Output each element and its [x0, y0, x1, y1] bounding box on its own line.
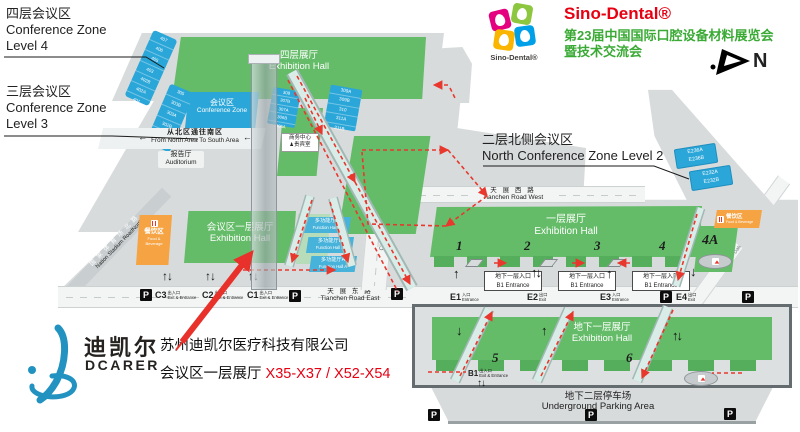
section-3: 3: [594, 238, 601, 254]
facility-marker-icon: [698, 375, 705, 382]
level4-hall-label-cn: 四层展厅: [172, 50, 426, 61]
parking-icon: P: [660, 291, 672, 303]
south-hall-label-cn: 会议区一层展厅: [184, 222, 296, 233]
tianchen-road-west-label: 天 展 西 路 Tianchen Road West: [468, 187, 558, 201]
sino-logo-caption: Sino-Dental®: [480, 53, 548, 62]
dcarer-name-en: DCARER: [85, 357, 160, 373]
south-hall-label-en: Exhibition Hall: [184, 233, 296, 244]
gate-c3: C3 出入口 Exit & Entrance: [155, 291, 196, 300]
arrow-updown-icon: ↑↓: [531, 265, 540, 280]
level4-exhibition-hall: 四层展厅 Exhibition Hall: [172, 37, 426, 99]
auditorium-label-cn: 报告厅: [158, 151, 204, 159]
arrow-up-icon: ↑: [541, 323, 548, 338]
venue-map: 国家体育场北路 Nation Stadium RoadNorth 天 展 东 路…: [0, 0, 800, 432]
section-6: 6: [626, 350, 633, 366]
parking-icon: P: [140, 289, 152, 301]
arrow-up-icon: ↑: [606, 266, 613, 281]
vip-room-label: 贵宾室: [294, 142, 311, 148]
level3-title: 三层会议区 Conference Zone Level 3: [6, 84, 106, 132]
food-icon: [151, 220, 158, 227]
level4-hall-label-en: Exhibition Hall: [172, 61, 426, 72]
dcarer-company: 苏州迪凯尔医疗科技有限公司: [160, 334, 349, 355]
level3-conference-zone: 会议区 Conference Zone: [185, 92, 259, 128]
parking-bottom-edge: [448, 421, 756, 424]
parking-icon: P: [391, 288, 403, 300]
level4-title: 四层会议区 Conference Zone Level 4: [6, 6, 106, 54]
gate-b1: B1 出入口 Exit & Entrance: [468, 369, 508, 378]
dcarer-logo: [22, 324, 80, 410]
dcarer-booth: 会议区一层展厅 X35-X37 / X52-X54: [160, 362, 390, 383]
food-beverage-north: 餐饮区 Food & Beverage: [714, 210, 762, 228]
b1-hall-label-en: Exhibition Hall: [432, 333, 772, 344]
gate-c1: C1 出入口 Exit & Entrance: [247, 291, 288, 300]
parking-icon: P: [724, 408, 736, 420]
b1-entrance-box-3: 地下一层入口 B1 Entrance: [632, 271, 690, 291]
function-hall-a: 多功能厅A Function Hall A: [309, 256, 357, 272]
arrow-left-icon: ←: [138, 132, 147, 142]
section-4a: 4A: [702, 233, 718, 249]
function-hall-b: 多功能厅B Function Hall B: [306, 237, 354, 253]
corridor-label-en: From North Area To South Area: [151, 137, 239, 144]
sino-title: Sino-Dental®: [564, 4, 671, 24]
elevator-shaft-cap: [248, 54, 280, 64]
facility-marker: [684, 371, 718, 386]
gate-e2: E2 出口 Exit: [527, 293, 547, 302]
b1-hall-label-cn: 地下一层展厅: [432, 322, 772, 333]
zone3-label-cn: 会议区: [185, 98, 259, 107]
arrow-updown-icon: ↑↓: [477, 378, 485, 389]
arrow-updown-icon: ↑↓: [205, 269, 215, 283]
section-5: 5: [492, 350, 499, 366]
food-icon: [717, 216, 724, 223]
section-1: 1: [456, 238, 463, 254]
logo-tile-yellow: [493, 29, 516, 52]
south-exhibition-hall: 会议区一层展厅 Exhibition Hall: [184, 211, 296, 263]
parking-icon: P: [585, 409, 597, 421]
gate-c2: C2 出入口 Exit & Entrance: [202, 291, 243, 300]
food-south-cn: 餐饮区: [136, 227, 172, 236]
auditorium-label-en: Auditorium: [158, 159, 204, 166]
function-hall-c: 多功能厅C Function Hall C: [303, 217, 351, 233]
corridor-label: ← 从北区通往南区 From North Area To South Area …: [120, 129, 270, 144]
arrow-updown-icon: ↑↓: [162, 269, 172, 283]
arrow-down-icon: ↓: [690, 264, 697, 279]
booth-label: 会议区一层展厅: [160, 366, 266, 382]
gate-e3: E3 入口 Entrance: [600, 293, 629, 302]
north-hall-label-cn: 一层展厅: [430, 214, 702, 226]
gate-e1: E1 入口 Entrance: [450, 293, 479, 302]
food-beverage-south: 餐饮区 Food & Beverage: [136, 215, 172, 265]
b1-exhibition-hall: 地下一层展厅 Exhibition Hall: [432, 317, 772, 360]
elevator-shaft: [251, 60, 277, 290]
gate-e4: E4 出口 Exit: [676, 293, 696, 302]
logo-tile-blue: [514, 25, 537, 48]
parking-icon: P: [742, 291, 754, 303]
business-center-label: 商务中心: [282, 134, 318, 142]
zone3-label-en: Conference Zone: [185, 107, 259, 115]
food-south-en2: Beverage: [136, 241, 172, 246]
section-2: 2: [524, 238, 531, 254]
level2-title: 二层北侧会议区 North Conference Zone Level 2: [482, 132, 663, 164]
parking-icon: P: [289, 290, 301, 302]
facility-marker-icon: [712, 258, 719, 265]
corridor-label-cn: 从北区通往南区: [151, 129, 239, 137]
tianchen-road-east-label: 天 展 东 路 Tianchen Road East: [310, 288, 390, 302]
sino-dental-logo: [488, 4, 542, 52]
north-hall-label-en: Exhibition Hall: [430, 226, 702, 238]
compass-icon: [711, 49, 751, 75]
booth-numbers: X35-X37 / X52-X54: [266, 366, 391, 382]
food-north-en: Food & Beverage: [726, 220, 753, 225]
arrow-updown-icon: ↑↓: [672, 328, 681, 343]
section-4: 4: [659, 238, 666, 254]
parking-label: 地下二层停车场 Underground Parking Area: [498, 391, 698, 412]
parking-icon: P: [428, 409, 440, 421]
auditorium: 报告厅 Auditorium: [158, 151, 204, 168]
sino-subtitle-2: 暨技术交流会: [564, 41, 642, 60]
facility-marker: [698, 254, 732, 269]
logo-tile-green: [510, 2, 533, 25]
arrow-up-icon: ↑: [453, 266, 460, 281]
compass-label: N: [753, 50, 767, 73]
arrow-down-icon: ↓: [456, 323, 463, 338]
business-center: 商务中心 ♟贵宾室: [281, 133, 319, 152]
